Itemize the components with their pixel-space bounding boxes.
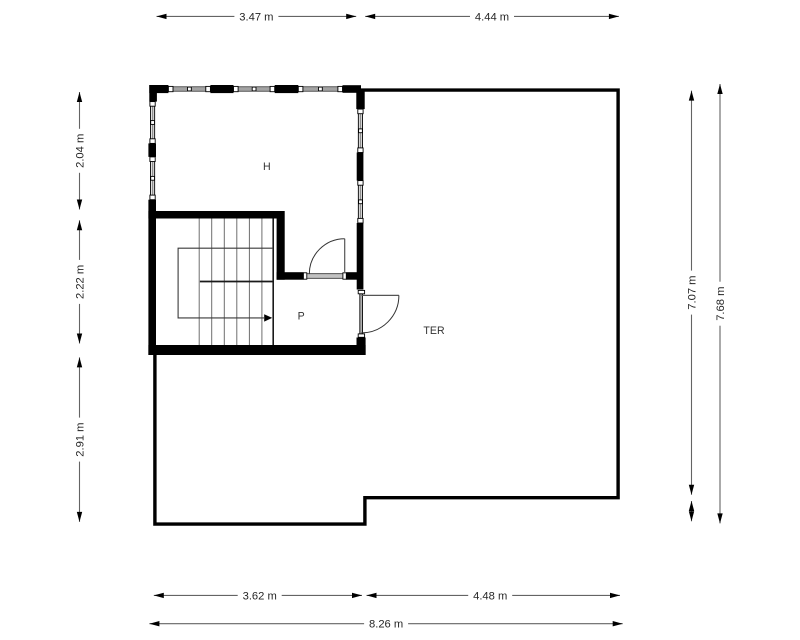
svg-text:3.62 m: 3.62 m: [243, 590, 277, 602]
svg-text:2.91 m: 2.91 m: [75, 422, 87, 456]
svg-text:8.26 m: 8.26 m: [369, 619, 403, 631]
svg-text:TER: TER: [423, 325, 445, 337]
svg-text:P: P: [298, 311, 305, 323]
svg-text:3.47 m: 3.47 m: [239, 11, 273, 23]
svg-text:7.07 m: 7.07 m: [687, 275, 699, 309]
svg-text:2.22 m: 2.22 m: [75, 265, 87, 299]
svg-text:4.44 m: 4.44 m: [475, 11, 509, 23]
svg-text:H: H: [263, 161, 271, 173]
svg-text:4.48 m: 4.48 m: [473, 590, 507, 602]
svg-text:2.04 m: 2.04 m: [75, 134, 87, 168]
svg-text:7.68 m: 7.68 m: [715, 287, 727, 321]
